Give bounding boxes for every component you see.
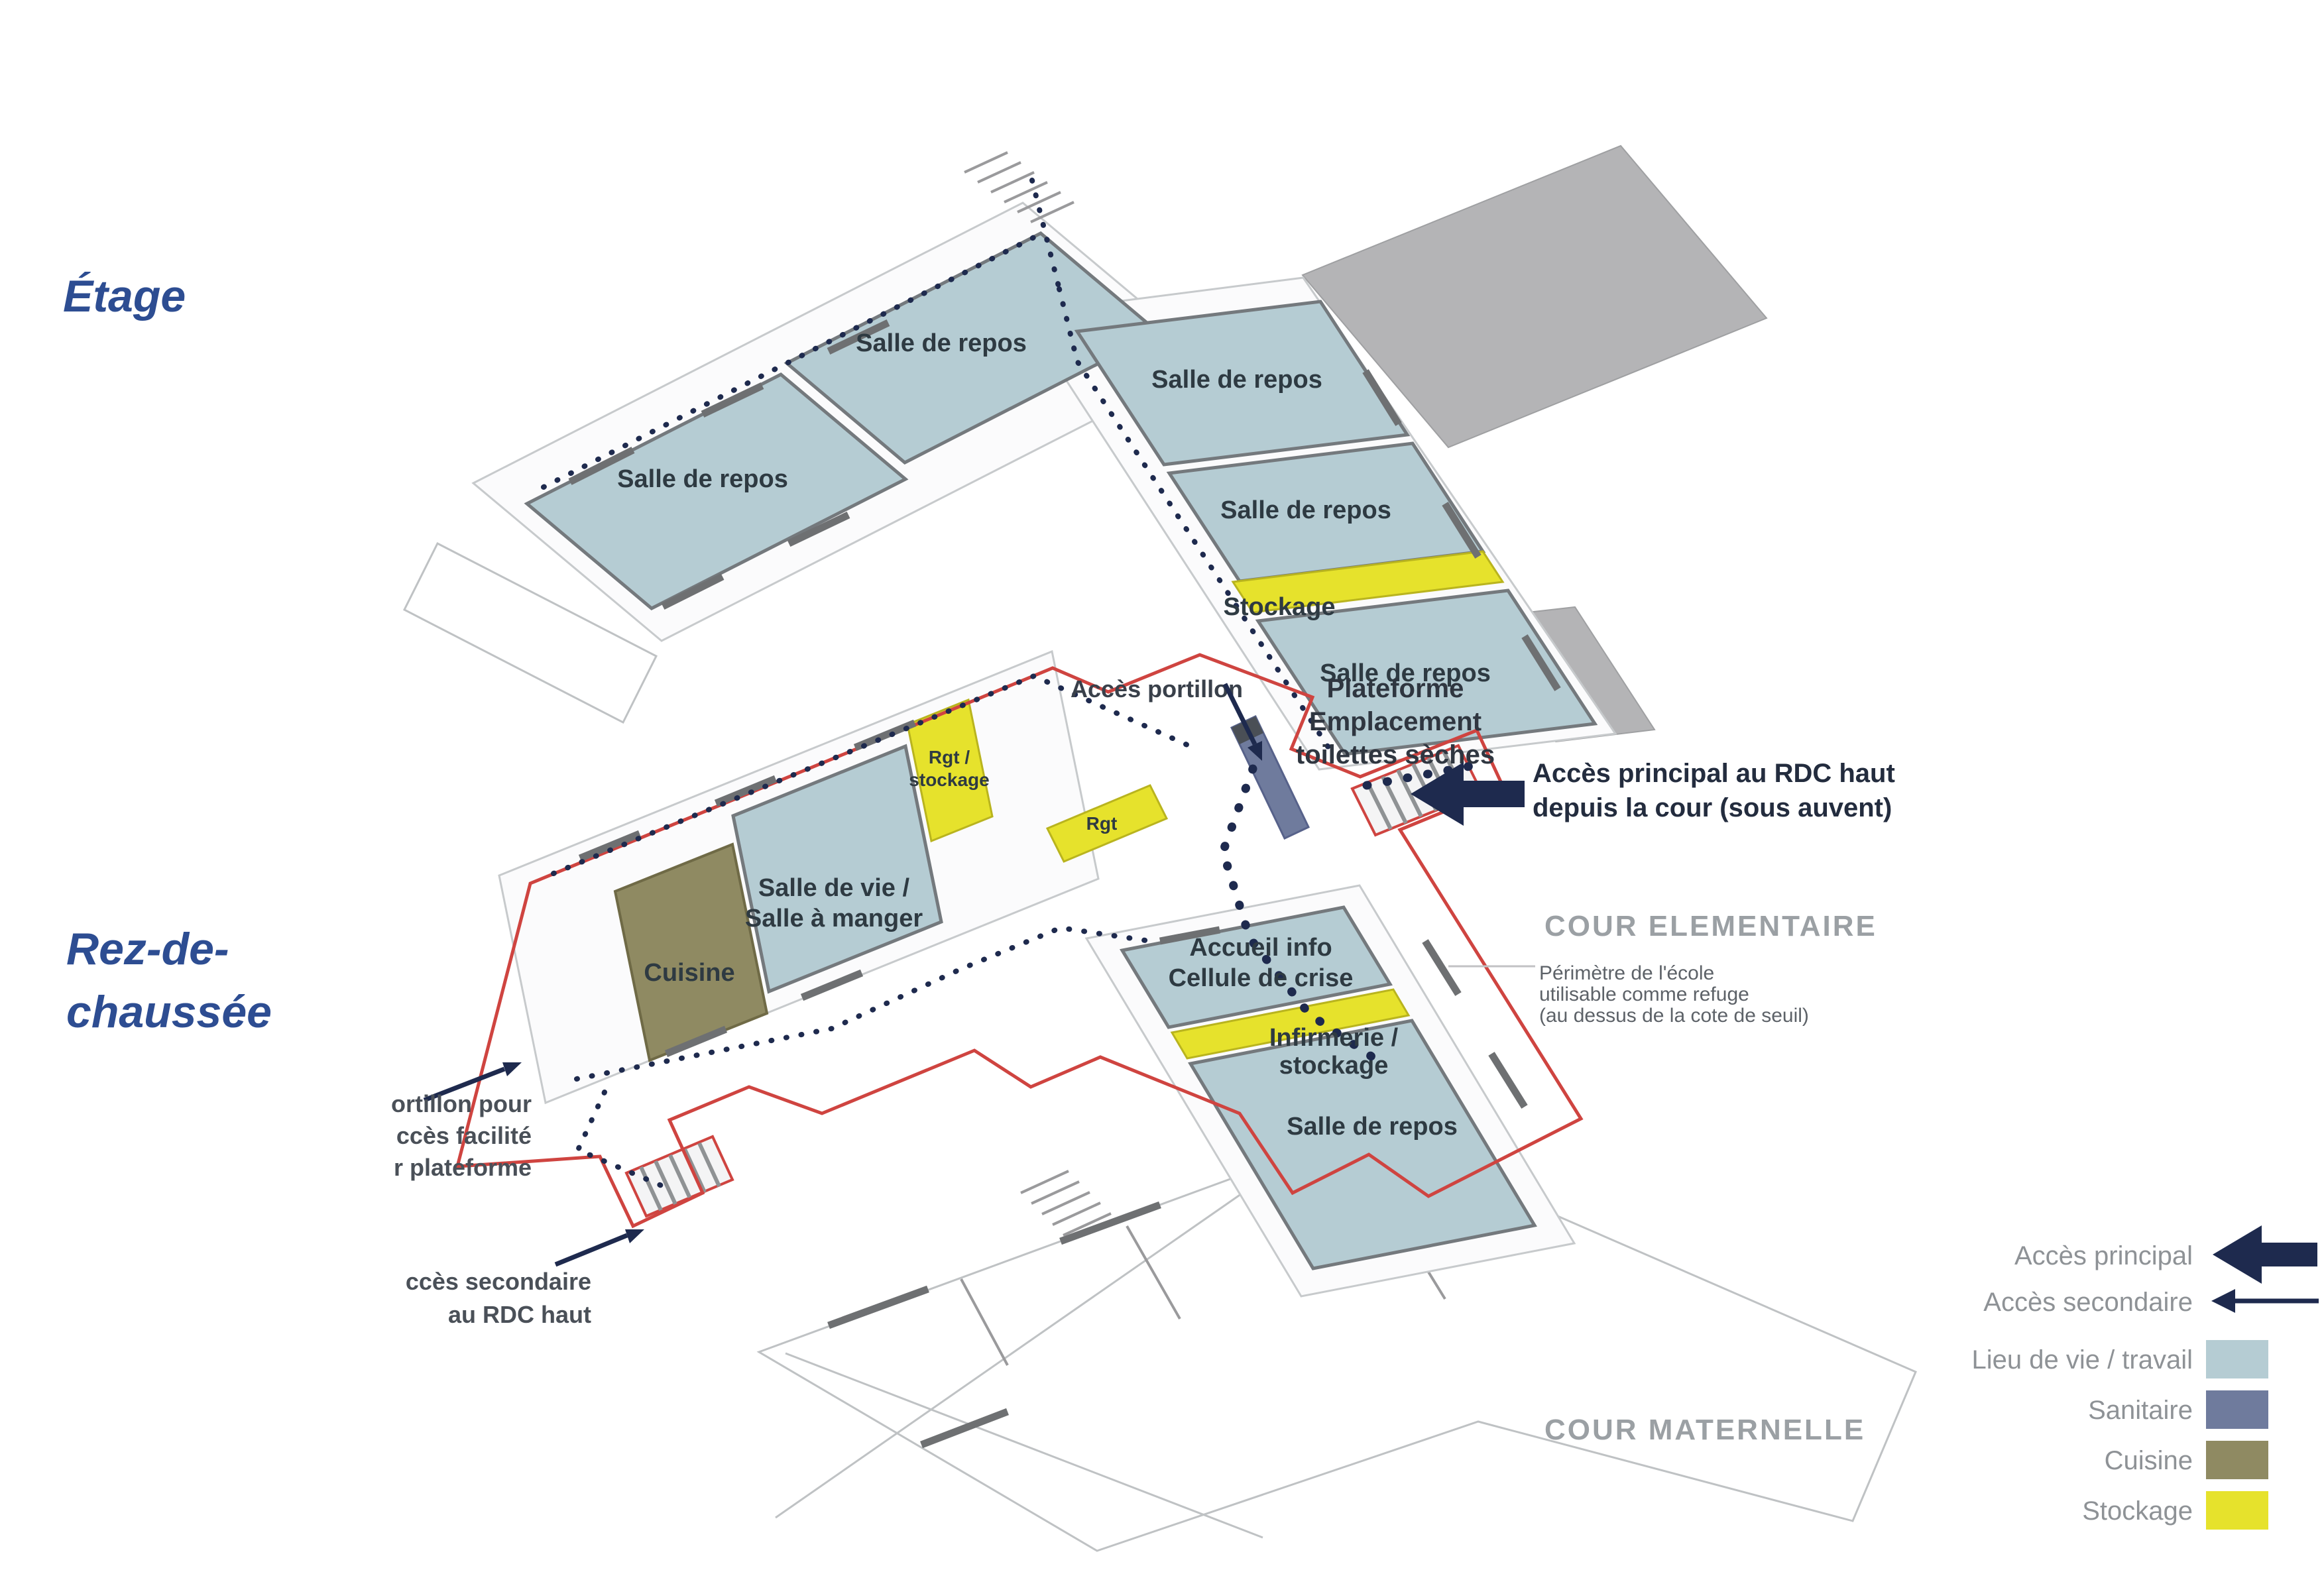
plateforme-label-3: toilettes sèches: [1296, 740, 1495, 769]
label-etage-salle-repos-a: Salle de repos: [617, 465, 788, 493]
floorplan-canvas: Salle de repos Salle de repos Salle de r…: [0, 0, 2324, 1572]
cour-maternelle-label: COUR MATERNELLE: [1544, 1414, 1865, 1446]
construction-diagonal: [785, 1353, 1263, 1538]
stair-step: [1004, 182, 1047, 202]
label-rdc-rgt-stockage-1: Rgt /: [929, 747, 970, 767]
portillon-note-3: r plateforme: [394, 1154, 532, 1181]
stair-step: [978, 162, 1021, 182]
acces-principal-note-2: depuis la cour (sous auvent): [1533, 793, 1892, 822]
label-rdc-salle-de-vie-1: Salle de vie /: [758, 874, 910, 902]
perimetre-note-2: utilisable comme refuge: [1539, 983, 1749, 1005]
rdc-title-line2: chaussée: [66, 987, 272, 1037]
label-rdc-salle-de-vie-2: Salle à manger: [745, 905, 923, 932]
plateforme-label-2: Emplacement: [1309, 707, 1482, 736]
rdc-title-line1: Rez-de-: [66, 924, 229, 974]
legend-stockage-swatch: [2206, 1491, 2268, 1530]
label-etage-salle-repos-c: Salle de repos: [1151, 366, 1322, 394]
legend-sanitaire-swatch: [2206, 1390, 2268, 1429]
legend-cuisine-label: Cuisine: [2105, 1446, 2193, 1475]
label-rdc-salle-repos: Salle de repos: [1287, 1113, 1458, 1141]
portillon-note-2: ccès facilité: [396, 1122, 532, 1149]
cour-elementaire-label: COUR ELEMENTAIRE: [1544, 910, 1877, 942]
legend: Accès principal Accès secondaire Lieu de…: [1971, 1225, 2319, 1530]
portillon-note-arrow-icon: [502, 1062, 522, 1076]
wall-segment: [921, 1412, 1008, 1445]
acces-secondaire-note-2: au RDC haut: [448, 1301, 591, 1328]
label-rdc-rgt: Rgt: [1086, 813, 1118, 834]
wall-segment: [1425, 941, 1458, 994]
construction-diagonal: [776, 1174, 1269, 1518]
wall-segment: [829, 1289, 928, 1325]
label-rdc-infirmerie-2: stockage: [1279, 1052, 1389, 1080]
label-rdc-cuisine: Cuisine: [644, 959, 734, 987]
etage-stairs: [964, 152, 1074, 222]
interior-wall: [961, 1279, 1008, 1365]
legend-lieu-de-vie-label: Lieu de vie / travail: [1971, 1345, 2193, 1375]
label-etage-salle-repos-d: Salle de repos: [1220, 496, 1391, 524]
wall-segment: [1491, 1054, 1525, 1107]
legend-acces-principal-arrow-icon: [2213, 1225, 2317, 1284]
acces-secondaire-arrow-icon: [625, 1229, 644, 1243]
acces-secondaire-note-1: ccès secondaire: [406, 1268, 591, 1295]
label-etage-salle-repos-b: Salle de repos: [856, 329, 1027, 357]
plateforme-label-1: Plateforme: [1327, 674, 1464, 703]
legend-acces-secondaire-arrow-icon: [2211, 1289, 2235, 1313]
legend-acces-principal-label: Accès principal: [2014, 1241, 2193, 1270]
legend-sanitaire-label: Sanitaire: [2088, 1396, 2193, 1425]
legend-lieu-de-vie-swatch: [2206, 1340, 2268, 1378]
portillon-note-1: ortillon pour: [391, 1090, 532, 1117]
label-rdc-infirmerie-1: Infirmerie /: [1269, 1024, 1399, 1052]
perimetre-note-1: Périmètre de l'école: [1539, 962, 1714, 984]
acces-principal-note-1: Accès principal au RDC haut: [1533, 759, 1895, 788]
etage-title: Étage: [63, 271, 186, 321]
stair-step: [964, 152, 1008, 172]
perimetre-note-3: (au dessus de la cote de seuil): [1539, 1005, 1809, 1027]
stair-step: [991, 172, 1034, 192]
acces-secondaire-arrow-shaft: [555, 1235, 627, 1264]
legend-acces-secondaire-label: Accès secondaire: [1983, 1288, 2193, 1317]
legend-stockage-label: Stockage: [2082, 1496, 2193, 1526]
interior-wall: [1127, 1226, 1180, 1319]
legend-cuisine-swatch: [2206, 1441, 2268, 1479]
stair-step: [1031, 202, 1074, 222]
wall-segment: [1061, 1205, 1160, 1241]
label-etage-stockage: Stockage: [1224, 593, 1336, 621]
acces-portillon-label: Accès portillon: [1071, 675, 1243, 702]
label-rdc-accueil-2: Cellule de crise: [1169, 964, 1354, 992]
label-rdc-rgt-stockage-2: stockage: [909, 769, 989, 790]
floorplan-figure: Salle de repos Salle de repos Salle de r…: [0, 0, 2324, 1572]
label-rdc-accueil-1: Accueil info: [1189, 934, 1332, 962]
